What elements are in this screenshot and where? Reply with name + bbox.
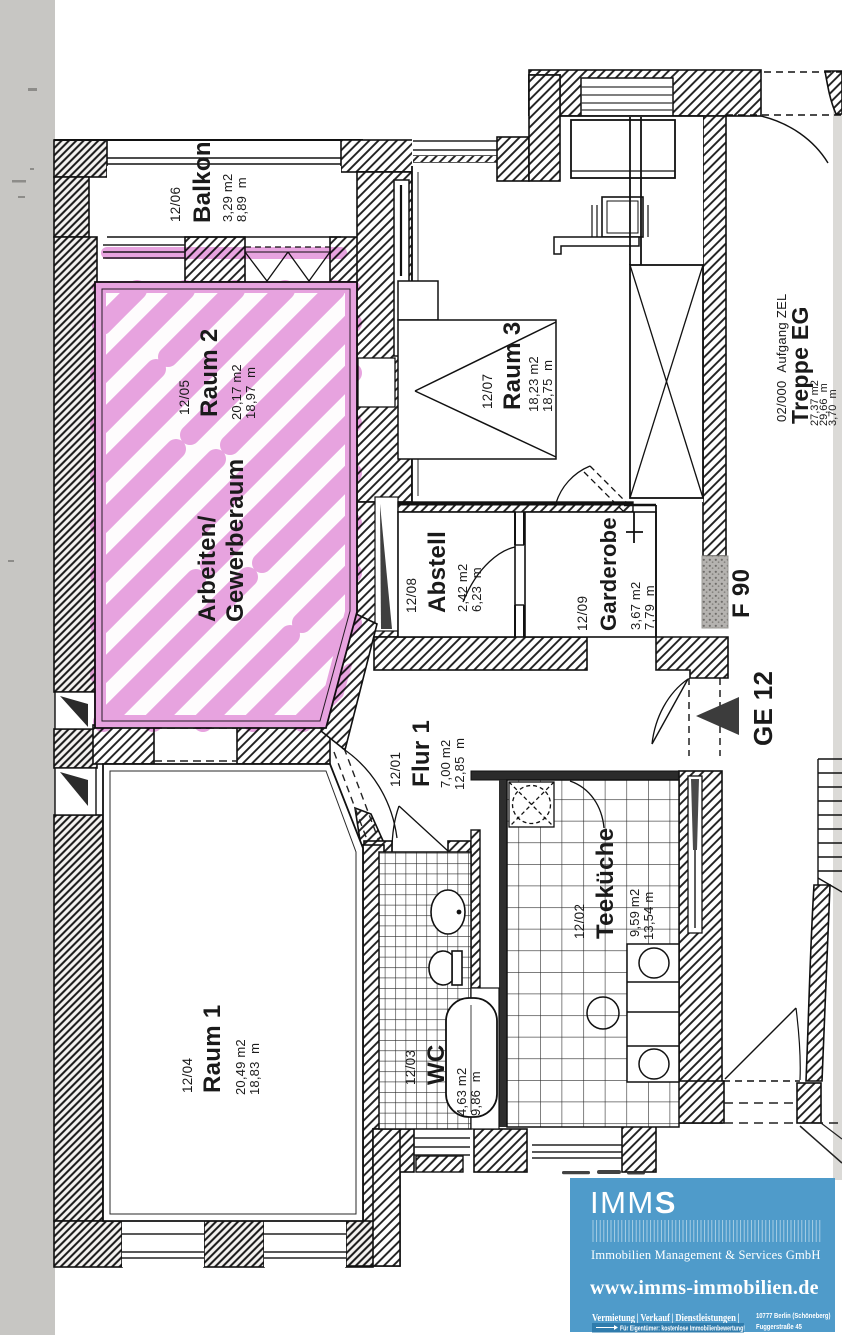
svg-text:6,23 m: 6,23 m — [469, 567, 484, 612]
svg-text:12/03: 12/03 — [403, 1050, 418, 1085]
svg-text:3,29 m2: 3,29 m2 — [220, 174, 235, 222]
svg-text:IMMS: IMMS — [590, 1185, 677, 1220]
svg-text:F 90: F 90 — [728, 569, 755, 618]
svg-text:Für Eigentümer: kostenlose Imm: Für Eigentümer: kostenlose Immobilienbew… — [620, 1325, 745, 1333]
svg-text:18,97 m: 18,97 m — [243, 367, 258, 419]
svg-text:Vermietung | Verkauf | Dienstl: Vermietung | Verkauf | Dienstleistungen … — [592, 1312, 739, 1324]
svg-text:3,67 m2: 3,67 m2 — [628, 582, 643, 630]
svg-text:10777 Berlin (Schöneberg): 10777 Berlin (Schöneberg) — [756, 1313, 830, 1321]
svg-text:12/04: 12/04 — [180, 1058, 195, 1093]
svg-text:8,89 m: 8,89 m — [234, 177, 249, 222]
svg-text:4,63 m2: 4,63 m2 — [454, 1068, 469, 1116]
svg-text:12/05: 12/05 — [177, 380, 192, 415]
svg-text:7,79 m: 7,79 m — [642, 585, 657, 630]
svg-text:Garderobe: Garderobe — [596, 517, 621, 631]
svg-text:Raum 3: Raum 3 — [499, 322, 526, 411]
svg-text:12/07: 12/07 — [480, 374, 495, 409]
svg-text:www.imms-immobilien.de: www.imms-immobilien.de — [590, 1277, 819, 1299]
svg-text:Immobilien Management & Servic: Immobilien Management & Services GmbH — [591, 1248, 821, 1262]
svg-text:12/02: 12/02 — [572, 904, 587, 939]
svg-text:Raum 1: Raum 1 — [199, 1005, 226, 1094]
svg-text:20,17 m2: 20,17 m2 — [229, 364, 244, 420]
svg-text:Arbeiten/: Arbeiten/ — [194, 515, 221, 622]
svg-text:Balkon: Balkon — [189, 141, 216, 223]
svg-text:12/08: 12/08 — [404, 578, 419, 613]
svg-text:Gewerberaum: Gewerberaum — [222, 459, 249, 622]
svg-text:9,59 m2: 9,59 m2 — [627, 889, 642, 937]
svg-text:12/06: 12/06 — [168, 187, 183, 222]
svg-text:Teeküche: Teeküche — [592, 828, 619, 939]
svg-text:3,70 m: 3,70 m — [827, 389, 839, 426]
svg-text:WC: WC — [423, 1044, 450, 1085]
svg-text:18,23 m2: 18,23 m2 — [526, 356, 541, 412]
svg-text:18,75 m: 18,75 m — [540, 360, 555, 412]
svg-text:9,86 m: 9,86 m — [468, 1071, 483, 1116]
svg-text:Fuggerstraße 45: Fuggerstraße 45 — [756, 1324, 802, 1332]
svg-text:13,54 m: 13,54 m — [641, 892, 656, 940]
svg-text:2,42 m2: 2,42 m2 — [455, 564, 470, 612]
svg-text:12/01: 12/01 — [388, 752, 403, 787]
svg-text:Raum 2: Raum 2 — [196, 329, 223, 418]
svg-text:GE 12: GE 12 — [748, 671, 778, 746]
svg-text:Flur 1: Flur 1 — [408, 720, 435, 787]
svg-text:7,00 m2: 7,00 m2 — [438, 740, 453, 788]
svg-text:12,85 m: 12,85 m — [452, 738, 467, 790]
svg-text:20,49 m2: 20,49 m2 — [233, 1039, 248, 1095]
svg-text:12/09: 12/09 — [575, 596, 590, 631]
svg-text:18,83 m: 18,83 m — [247, 1043, 262, 1095]
svg-text:Abstell: Abstell — [424, 531, 451, 613]
